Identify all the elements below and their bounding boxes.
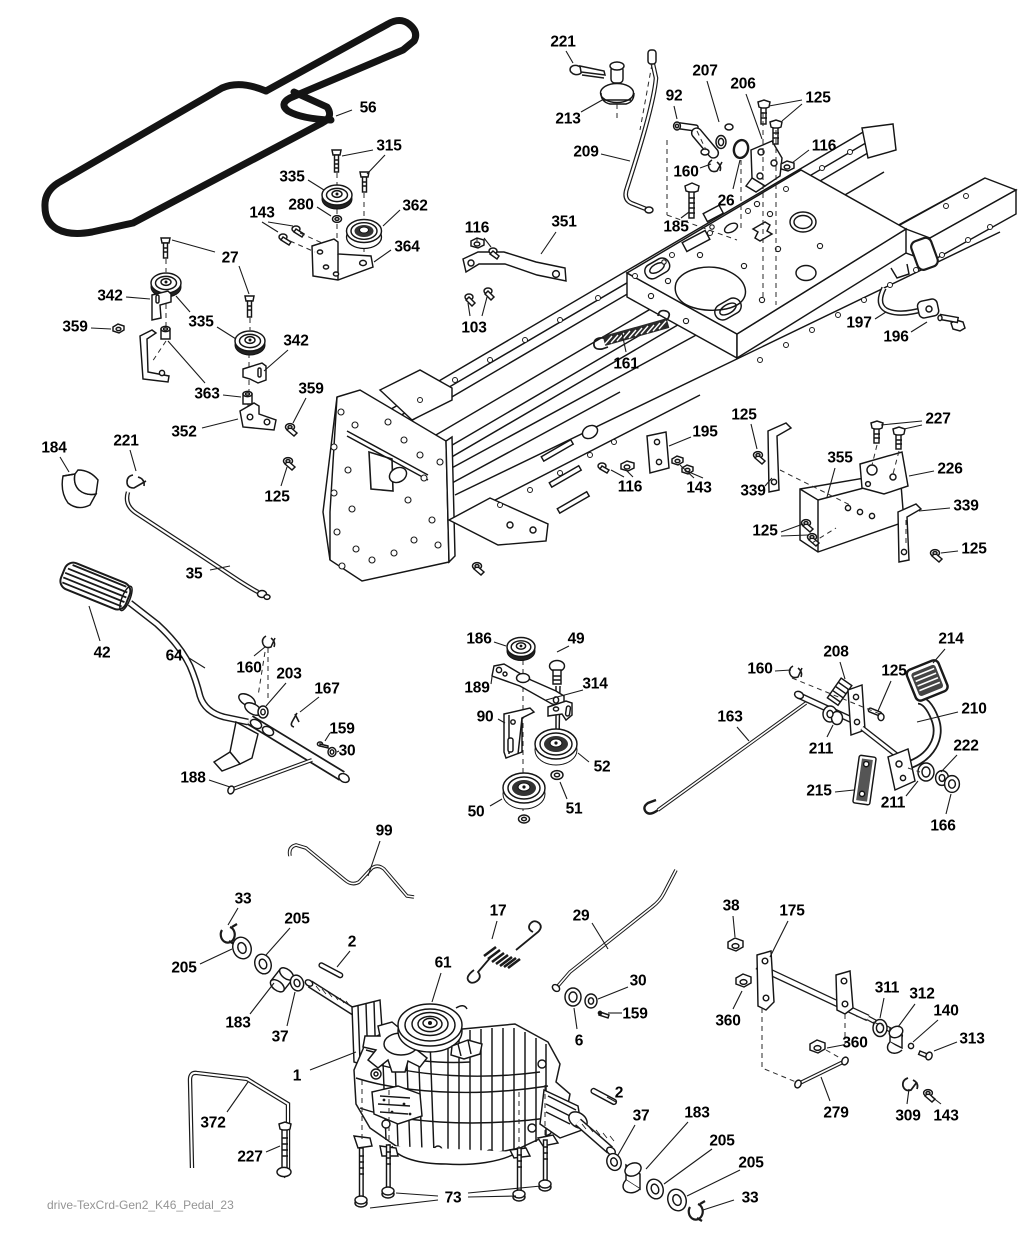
- svg-text:166: 166: [930, 818, 956, 835]
- svg-text:17: 17: [490, 903, 507, 920]
- svg-text:116: 116: [812, 138, 837, 155]
- svg-text:314: 314: [582, 676, 608, 693]
- svg-text:30: 30: [630, 973, 647, 990]
- svg-text:208: 208: [823, 644, 849, 661]
- svg-text:351: 351: [551, 214, 577, 231]
- svg-text:2: 2: [348, 934, 356, 951]
- svg-text:196: 196: [883, 329, 909, 346]
- svg-text:37: 37: [272, 1029, 289, 1046]
- svg-text:143: 143: [933, 1108, 959, 1125]
- svg-text:125: 125: [881, 663, 907, 680]
- svg-text:6: 6: [575, 1033, 584, 1050]
- svg-text:210: 210: [961, 701, 986, 718]
- svg-text:125: 125: [731, 407, 757, 424]
- svg-text:drive-TexCrd-Gen2_K46_Pedal_23: drive-TexCrd-Gen2_K46_Pedal_23: [47, 1198, 234, 1212]
- svg-text:311: 311: [875, 980, 900, 997]
- svg-text:215: 215: [806, 783, 832, 800]
- svg-text:35: 35: [186, 566, 203, 583]
- svg-text:364: 364: [394, 239, 420, 256]
- svg-text:52: 52: [594, 759, 611, 776]
- svg-text:33: 33: [742, 1190, 759, 1207]
- svg-text:309: 309: [895, 1108, 921, 1125]
- svg-text:189: 189: [464, 680, 490, 697]
- svg-text:207: 207: [692, 63, 717, 80]
- svg-text:280: 280: [288, 197, 313, 214]
- svg-text:175: 175: [779, 903, 805, 920]
- svg-text:160: 160: [236, 660, 261, 677]
- svg-text:203: 203: [276, 666, 302, 683]
- svg-text:205: 205: [738, 1155, 764, 1172]
- svg-text:205: 205: [284, 911, 310, 928]
- svg-text:99: 99: [376, 823, 393, 840]
- svg-text:183: 183: [684, 1105, 710, 1122]
- svg-text:214: 214: [938, 631, 964, 648]
- svg-text:73: 73: [445, 1190, 462, 1207]
- svg-text:50: 50: [468, 804, 485, 821]
- svg-text:161: 161: [613, 356, 639, 373]
- svg-text:185: 185: [663, 219, 689, 236]
- svg-text:339: 339: [740, 483, 766, 500]
- svg-text:160: 160: [673, 164, 698, 181]
- svg-text:42: 42: [94, 645, 111, 662]
- svg-text:140: 140: [933, 1003, 958, 1020]
- svg-text:103: 103: [461, 320, 487, 337]
- svg-text:163: 163: [717, 709, 743, 726]
- svg-text:27: 27: [222, 250, 239, 267]
- svg-text:143: 143: [686, 480, 712, 497]
- svg-text:221: 221: [550, 34, 576, 51]
- svg-text:186: 186: [466, 631, 492, 648]
- svg-text:355: 355: [827, 450, 853, 467]
- svg-text:159: 159: [622, 1006, 648, 1023]
- svg-text:116: 116: [618, 479, 643, 496]
- svg-text:37: 37: [633, 1108, 650, 1125]
- svg-text:33: 33: [235, 891, 252, 908]
- svg-text:184: 184: [41, 440, 67, 457]
- svg-text:335: 335: [279, 169, 305, 186]
- svg-text:125: 125: [752, 523, 778, 540]
- svg-text:372: 372: [200, 1115, 225, 1132]
- svg-text:362: 362: [402, 198, 427, 215]
- svg-text:359: 359: [62, 319, 88, 336]
- svg-text:279: 279: [823, 1105, 849, 1122]
- svg-text:213: 213: [555, 111, 581, 128]
- svg-text:38: 38: [723, 898, 740, 915]
- svg-text:312: 312: [909, 986, 934, 1003]
- svg-text:359: 359: [298, 381, 324, 398]
- svg-text:315: 315: [376, 138, 402, 155]
- svg-text:227: 227: [925, 411, 950, 428]
- svg-text:26: 26: [718, 193, 735, 210]
- svg-text:143: 143: [249, 205, 275, 222]
- svg-text:211: 211: [881, 795, 906, 812]
- svg-text:339: 339: [953, 498, 979, 515]
- svg-text:335: 335: [188, 314, 214, 331]
- svg-text:363: 363: [194, 386, 220, 403]
- svg-text:360: 360: [715, 1013, 740, 1030]
- svg-text:61: 61: [435, 955, 452, 972]
- svg-text:125: 125: [264, 489, 290, 506]
- svg-text:160: 160: [747, 661, 772, 678]
- svg-text:183: 183: [225, 1015, 251, 1032]
- svg-text:29: 29: [573, 908, 590, 925]
- svg-text:342: 342: [97, 288, 122, 305]
- svg-text:116: 116: [465, 220, 490, 237]
- svg-text:64: 64: [166, 648, 183, 665]
- svg-text:211: 211: [809, 741, 834, 758]
- svg-text:205: 205: [709, 1133, 735, 1150]
- svg-text:167: 167: [314, 681, 339, 698]
- svg-text:205: 205: [171, 960, 197, 977]
- svg-text:1: 1: [293, 1068, 302, 1085]
- svg-text:221: 221: [113, 433, 139, 450]
- svg-text:226: 226: [937, 461, 963, 478]
- svg-text:159: 159: [329, 721, 355, 738]
- svg-text:197: 197: [846, 315, 871, 332]
- svg-text:227: 227: [237, 1149, 262, 1166]
- svg-text:125: 125: [961, 541, 987, 558]
- svg-text:2: 2: [615, 1085, 623, 1102]
- svg-text:90: 90: [477, 709, 494, 726]
- svg-text:222: 222: [953, 738, 978, 755]
- svg-text:56: 56: [360, 100, 377, 117]
- svg-text:188: 188: [180, 770, 206, 787]
- svg-text:352: 352: [171, 424, 196, 441]
- svg-text:125: 125: [805, 90, 831, 107]
- svg-text:313: 313: [959, 1031, 985, 1048]
- svg-text:206: 206: [730, 76, 756, 93]
- svg-text:342: 342: [283, 333, 308, 350]
- svg-text:92: 92: [666, 88, 683, 105]
- svg-text:360: 360: [842, 1035, 867, 1052]
- svg-text:195: 195: [692, 424, 718, 441]
- svg-text:209: 209: [573, 144, 599, 161]
- svg-text:49: 49: [568, 631, 585, 648]
- svg-text:51: 51: [566, 801, 583, 818]
- svg-text:30: 30: [339, 743, 356, 760]
